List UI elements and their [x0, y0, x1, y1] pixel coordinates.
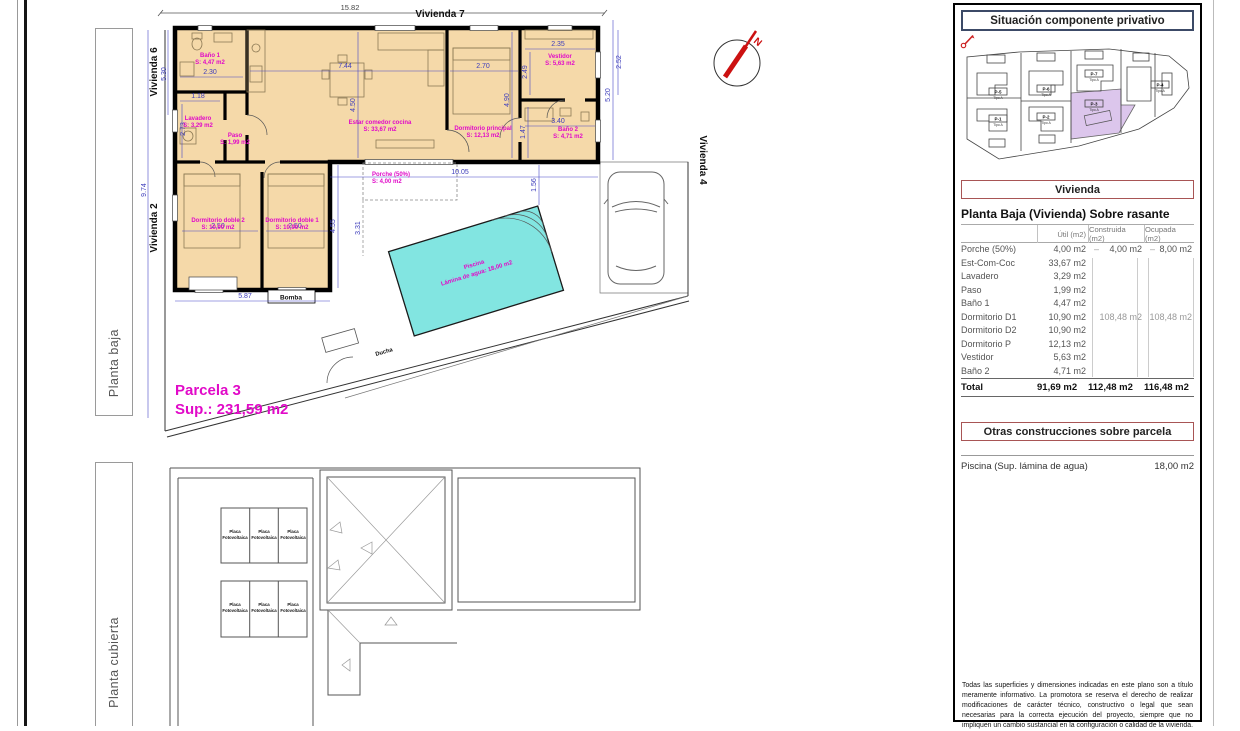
site-tipo-p2: Tipo A: [1041, 121, 1051, 125]
room-paso-area: S: 1,99 m2: [220, 140, 250, 146]
dim-banio2-h: 1.47: [520, 125, 527, 139]
pv-cell-label2: Fotovoltaica: [251, 535, 277, 540]
pv-cell-label: Placa: [229, 529, 241, 534]
vivienda-4-label: Vivienda 4: [697, 135, 708, 185]
dim-porche-h: 3.31: [355, 221, 362, 235]
dim-dormp-w: 2.70: [476, 63, 490, 70]
room-porche-area: S: 4,00 m2: [372, 179, 402, 185]
tab-planta-cubierta-label: Planta cubierta: [107, 617, 121, 726]
ocupada-bracket: [1148, 258, 1194, 377]
sheet-frame-thick-line: [24, 0, 27, 726]
info-panel: Situación componente privativo: [953, 3, 1202, 722]
row-util: 10,90 m2: [1037, 311, 1088, 325]
floor-plan-drawing: Piscina Lámina de agua: 18,00 m2 Bomba D…: [140, 0, 780, 460]
car: [604, 172, 668, 284]
dim-driveway: 5.20: [605, 88, 612, 102]
otras-section-box: Otras construcciones sobre parcela: [961, 422, 1194, 441]
room-dd2-area: S: 10,90 m2: [201, 225, 235, 231]
dim-banio2-w: 3.40: [551, 118, 565, 125]
tab-planta-baja-label: Planta baja: [107, 329, 121, 415]
site-tipo-p7: Tipo A: [1089, 78, 1099, 82]
row-dash: –: [1094, 243, 1099, 257]
room-banio2: Baño 2: [558, 127, 579, 133]
shower-area: [322, 329, 359, 353]
dim-vestidor-h: 2.49: [522, 65, 529, 79]
row-label: Est-Com-Coc: [961, 257, 1037, 271]
dim-wing-h: 4.55: [330, 219, 337, 233]
roof-outline: [170, 468, 640, 726]
site-label-p4: P-4: [1156, 83, 1164, 88]
room-dormp: Dormitorio principal: [454, 126, 512, 132]
row-label: Porche (50%): [961, 243, 1037, 257]
room-lavadero-area: S: 3,29 m2: [183, 123, 213, 129]
otras-section-label: Otras construcciones sobre parcela: [984, 426, 1172, 438]
dim-right-upper: 2.52: [616, 55, 623, 69]
room-banio2-area: S: 4,71 m2: [553, 134, 583, 140]
site-tipo-p4: Tipo A: [1155, 89, 1165, 93]
row-label: Dormitorio D1: [961, 311, 1037, 325]
site-tipo-p3: Tipo A: [1089, 108, 1099, 112]
row-util: 5,63 m2: [1037, 351, 1088, 365]
table-header: Útil (m2) Construida (m2) Ocupada (m2): [961, 224, 1194, 243]
row-ocup: 8,00 m2: [1159, 243, 1192, 257]
room-salon-area: S: 33,67 m2: [363, 127, 397, 133]
room-porche: Porche (50%): [372, 172, 410, 178]
row-dash: –: [1150, 243, 1155, 257]
row-util: 10,90 m2: [1037, 324, 1088, 338]
dim-left-upper: 5.30: [161, 67, 168, 81]
pv-cell-label: Placa: [287, 529, 299, 534]
dim-banio1: 2.30: [203, 69, 217, 76]
piscina-label: Piscina (Sup. lámina de agua): [961, 461, 1088, 472]
areas-table: Útil (m2) Construida (m2) Ocupada (m2) P…: [961, 224, 1194, 397]
room-dd1-area: S: 10,90 m2: [275, 225, 309, 231]
pv-cell-label: Placa: [287, 602, 299, 607]
room-banio1-area: S: 4,47 m2: [195, 60, 225, 66]
row-label: Lavadero: [961, 270, 1037, 284]
row-label: Baño 2: [961, 365, 1037, 379]
disclaimer-text: Todas las superficies y dimensiones indi…: [962, 681, 1193, 731]
vivienda-section-box: Vivienda: [961, 180, 1194, 199]
room-dd1: Dormitorio doble 1: [265, 218, 319, 224]
vivienda-6-label: Vivienda 6: [149, 47, 160, 97]
parcela-title: Parcela 3: [175, 382, 241, 399]
total-util: 91,69 m2: [1037, 379, 1088, 396]
bomba-label: Bomba: [280, 295, 302, 302]
room-dd2: Dormitorio doble 2: [191, 218, 245, 224]
room-dormp-area: S: 12,13 m2: [466, 133, 500, 139]
piscina-row: Piscina (Sup. lámina de agua) 18,00 m2: [961, 455, 1194, 472]
room-vestidor-area: S: 5,63 m2: [545, 61, 575, 67]
row-label: Dormitorio P: [961, 338, 1037, 352]
row-util: 4,00 m2: [1037, 243, 1088, 257]
total-constr: 112,48 m2: [1088, 379, 1144, 396]
row-constr: 4,00 m2: [1109, 243, 1142, 257]
room-salon: Estar comedor cocina: [349, 120, 412, 126]
col-construida: Construida (m2): [1088, 225, 1144, 243]
total-ocup: 116,48 m2: [1144, 379, 1194, 396]
dim-top: 15.82: [341, 3, 360, 12]
highlighted-parcel-p3: [1071, 89, 1135, 139]
dim-left: 9.74: [141, 183, 148, 197]
row-util: 4,47 m2: [1037, 297, 1088, 311]
dim-salon-w: 7.44: [338, 63, 352, 70]
ducha-label: Ducha: [375, 347, 394, 358]
row-util: 1,99 m2: [1037, 284, 1088, 298]
panel-title: Situación componente privativo: [990, 15, 1164, 27]
vivienda-7-label: Vivienda 7: [415, 9, 465, 20]
pv-cell-label2: Fotovoltaica: [251, 608, 277, 613]
pv-cell-label: Placa: [258, 602, 270, 607]
dim-vestidor-w: 2.35: [551, 41, 565, 48]
pv-cell-label2: Fotovoltaica: [280, 608, 306, 613]
site-tipo-p5: Tipo A: [993, 96, 1003, 100]
pv-cell-label2: Fotovoltaica: [280, 535, 306, 540]
row-util: 3,29 m2: [1037, 270, 1088, 284]
site-tipo-p6: Tipo A: [1041, 93, 1051, 97]
pv-cell-label2: Fotovoltaica: [222, 535, 248, 540]
row-util: 4,71 m2: [1037, 365, 1088, 379]
dim-porche-w: 10.05: [451, 169, 469, 176]
row-util: 12,13 m2: [1037, 338, 1088, 352]
dim-wing-w: 5.87: [238, 293, 252, 300]
table-row: Porche (50%) 4,00 m2 –4,00 m2 –8,00 m2: [961, 243, 1194, 257]
site-label-p5: P-5: [994, 90, 1002, 95]
row-label: Paso: [961, 284, 1037, 298]
solar-panel-grids: Placa Fotovoltaica Placa Fotovoltaica Pl…: [221, 508, 307, 637]
dim-salon-h: 4.50: [350, 98, 357, 112]
sheet-right-edge: [1213, 0, 1214, 726]
site-label-p1: P-1: [994, 117, 1002, 122]
pv-cell-label: Placa: [258, 529, 270, 534]
site-tipo-p1: Tipo A: [993, 123, 1003, 127]
room-vestidor: Vestidor: [548, 54, 572, 60]
row-label: Dormitorio D2: [961, 324, 1037, 338]
tab-planta-cubierta: Planta cubierta: [95, 462, 133, 726]
total-label: Total: [961, 379, 1037, 396]
site-label-p2: P-2: [1042, 115, 1050, 120]
dim-dormp-h: 4.90: [504, 93, 511, 107]
sheet-frame-thin-line: [17, 0, 18, 726]
row-label: Vestidor: [961, 351, 1037, 365]
pool: Piscina Lámina de agua: 18,00 m2: [389, 206, 564, 336]
room-lavadero: Lavadero: [185, 116, 212, 122]
site-label-p7: P-7: [1090, 72, 1098, 77]
row-label: Baño 1: [961, 297, 1037, 311]
north-compass-icon: N: [714, 31, 764, 86]
pv-cell-label: Placa: [229, 602, 241, 607]
site-label-p6: P-6: [1042, 87, 1050, 92]
col-util: Útil (m2): [1037, 225, 1088, 243]
tab-planta-baja: Planta baja: [95, 28, 133, 416]
vivienda-section-label: Vivienda: [1055, 184, 1100, 196]
room-banio1: Baño 1: [200, 53, 221, 59]
site-label-p3: P-3: [1090, 102, 1098, 107]
col-ocupada: Ocupada (m2): [1144, 225, 1194, 243]
row-util: 33,67 m2: [1037, 257, 1088, 271]
room-paso: Paso: [228, 133, 243, 139]
roof-plan-drawing: Placa Fotovoltaica Placa Fotovoltaica Pl…: [140, 460, 680, 726]
dim-lavadero-w: 1.18: [191, 93, 205, 100]
panel-title-box: Situación componente privativo: [961, 10, 1194, 31]
piscina-value: 18,00 m2: [1154, 461, 1194, 472]
table-total-row: Total 91,69 m2 112,48 m2 116,48 m2: [961, 378, 1194, 397]
pv-cell-label2: Fotovoltaica: [222, 608, 248, 613]
site-plan: P-5 Tipo A P-1 Tipo A P-6 Tipo A P-2 Tip…: [959, 43, 1199, 169]
vivienda-2-label: Vivienda 2: [149, 203, 160, 253]
table-title: Planta Baja (Vivienda) Sobre rasante: [961, 207, 1170, 221]
parcela-sup: Sup.: 231,59 m2: [175, 401, 288, 418]
construida-bracket: [1092, 258, 1138, 377]
dim-pool-off: 1.56: [531, 178, 538, 192]
